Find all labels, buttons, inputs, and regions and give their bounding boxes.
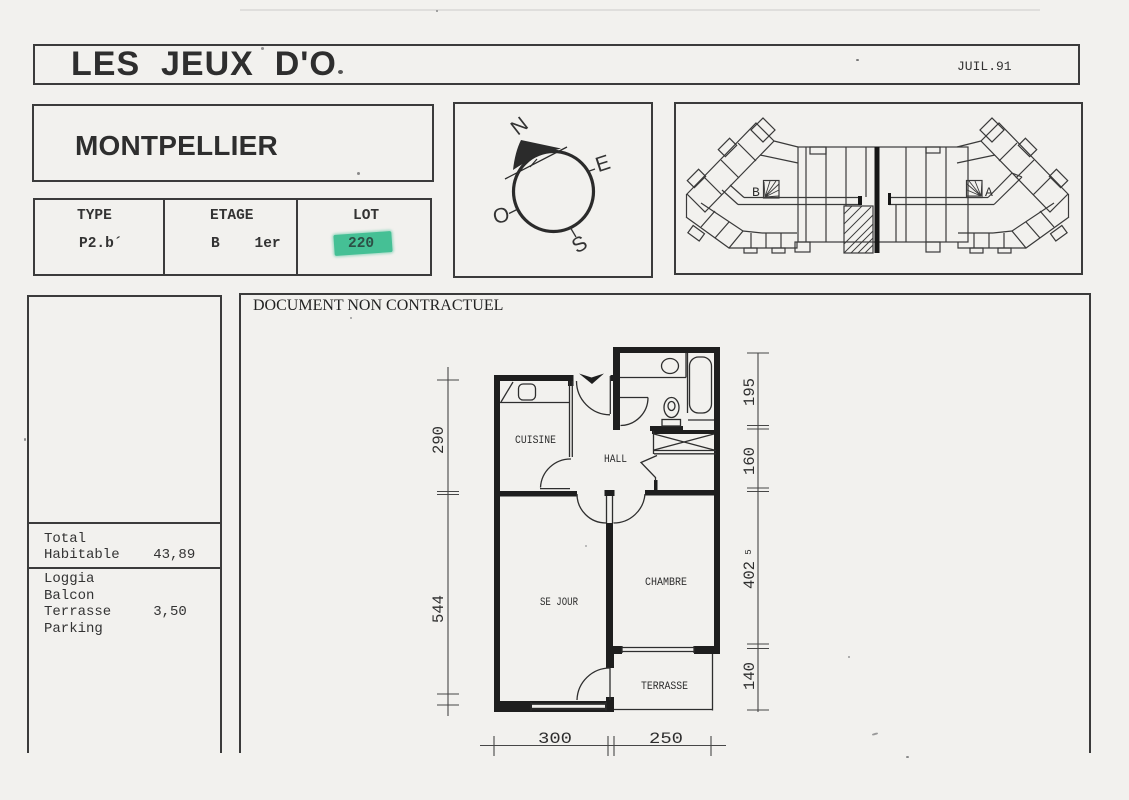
svg-text:B: B (752, 185, 760, 200)
svg-text:N: N (507, 113, 533, 140)
svg-text:544: 544 (430, 595, 448, 623)
svg-text:CHAMBRE: CHAMBRE (645, 577, 687, 589)
svg-text:HALL: HALL (604, 454, 627, 466)
svg-text:TERRASSE: TERRASSE (641, 681, 688, 693)
svg-text:S: S (568, 231, 592, 258)
svg-text:402: 402 (741, 561, 759, 589)
svg-text:250: 250 (649, 730, 683, 748)
svg-text:O: O (491, 203, 512, 229)
svg-text:140: 140 (741, 662, 759, 690)
svg-text:160: 160 (741, 447, 759, 475)
svg-text:290: 290 (430, 426, 448, 454)
svg-text:300: 300 (538, 730, 572, 748)
svg-text:195: 195 (741, 378, 759, 406)
svg-text:A: A (985, 185, 993, 200)
svg-text:SE JOUR: SE JOUR (540, 597, 578, 609)
svg-text:E: E (593, 151, 613, 177)
svg-text:5: 5 (744, 549, 754, 554)
svg-text:CUISINE: CUISINE (515, 435, 556, 447)
